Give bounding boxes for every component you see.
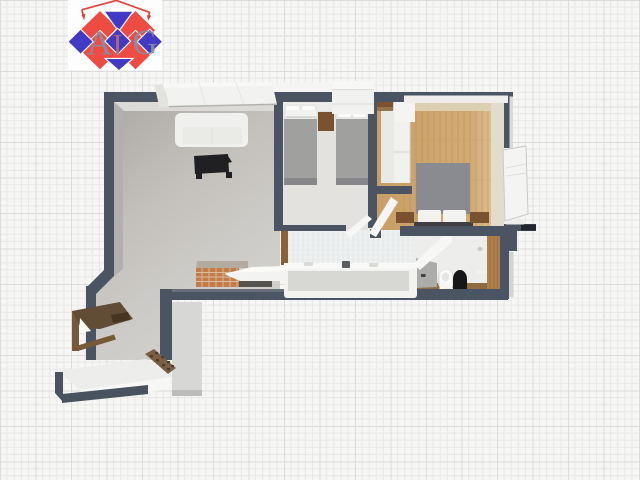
svg-text:I: I [113,29,123,62]
svg-text:G: G [132,23,157,62]
svg-text:A: A [87,24,113,63]
